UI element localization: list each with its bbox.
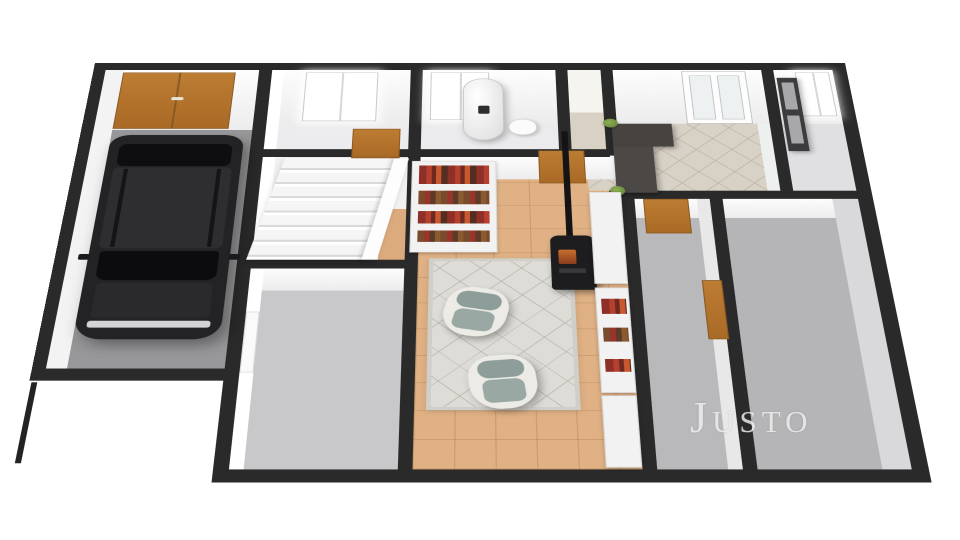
- bookshelf-row-4: [417, 231, 489, 242]
- closet-back-face: [567, 70, 603, 112]
- bedroom-top-left-door: [351, 129, 401, 158]
- plant-top: [603, 119, 618, 128]
- wall-stairhall-bottom: [251, 260, 418, 269]
- bedroom-top-left-window: [302, 72, 379, 121]
- hall-low-cabinet: [601, 395, 642, 467]
- suv-mirror-right: [228, 254, 240, 260]
- room-bottom-left-back-face: [262, 268, 405, 290]
- justo-watermark: Justo: [690, 392, 813, 443]
- wardrobe-mirror-pane-1: [781, 83, 798, 110]
- wall-outer-left-lower: [211, 377, 239, 483]
- suv-windshield: [95, 251, 220, 280]
- wood-stove: [550, 235, 597, 289]
- bedroom-right-1-door: [643, 199, 692, 234]
- stove-handle: [559, 268, 586, 272]
- bookshelf-row-3: [418, 211, 490, 223]
- suv-hood: [90, 283, 213, 318]
- french-door-pane-left: [688, 75, 716, 119]
- water-heater-panel: [478, 106, 489, 114]
- water-heater: [463, 78, 505, 140]
- garage-door-handles: [171, 97, 184, 100]
- suv-headlight-strip: [86, 321, 211, 328]
- suv-rear-window: [116, 144, 233, 166]
- floor-plan-stage: Justo: [0, 0, 960, 540]
- wardrobe-mirror-pane-2: [787, 116, 804, 144]
- staircase: [246, 158, 403, 259]
- hall-shelf-books-1: [601, 299, 627, 314]
- wall-garage-bottom: [29, 369, 239, 381]
- room-bottom-left-floor: [244, 268, 405, 469]
- bookshelf: [409, 161, 497, 253]
- wall-outer-bottom: [227, 469, 931, 482]
- armchair-2-back-cushion: [476, 358, 525, 379]
- french-door-pane-right: [717, 75, 746, 119]
- suv-mirror-left: [78, 254, 90, 260]
- bookshelf-row-1: [419, 165, 489, 184]
- bookshelf-row-2: [418, 191, 489, 205]
- desk-top-section: [612, 124, 674, 147]
- wall-outer-top: [94, 63, 845, 70]
- hall-shelf-books-3: [605, 359, 632, 372]
- entry-french-door: [681, 71, 753, 123]
- stove-fire-window: [558, 250, 576, 264]
- garage-door-split: [171, 73, 182, 128]
- armchair-2-seat-cushion: [481, 378, 527, 404]
- hall-shelf-books-2: [603, 328, 629, 342]
- driveway-boundary-line: [15, 382, 38, 463]
- garage-door: [113, 72, 236, 128]
- armchair-1-seat-cushion: [450, 307, 496, 332]
- toilet: [508, 119, 537, 135]
